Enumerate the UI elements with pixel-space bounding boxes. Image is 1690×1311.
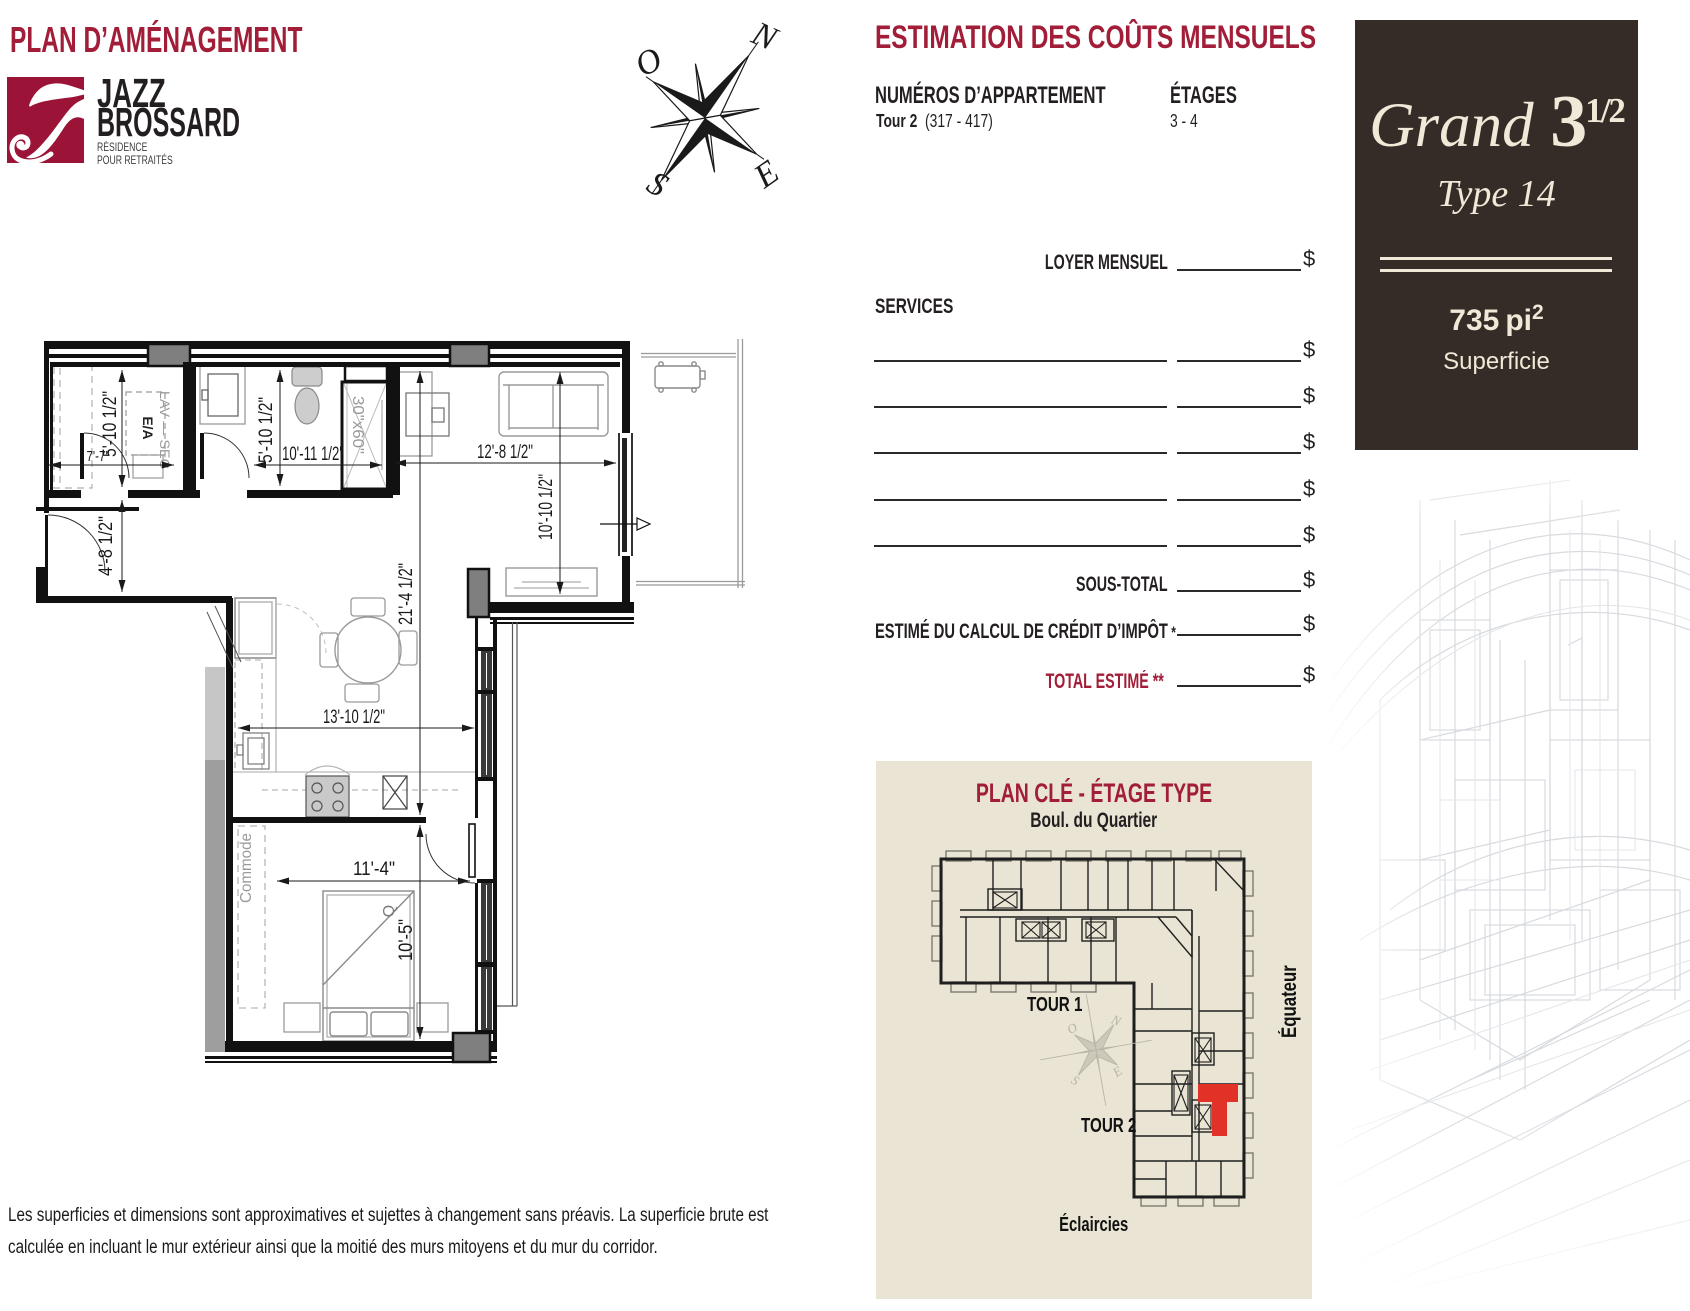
svg-text:5'-10 1/2": 5'-10 1/2" (256, 397, 277, 463)
svg-text:10'-5": 10'-5" (396, 919, 417, 961)
svg-text:N: N (1108, 1011, 1124, 1029)
svg-text:LAV — SEC: LAV — SEC (157, 391, 173, 469)
svg-text:21'-4 1/2": 21'-4 1/2" (396, 563, 417, 625)
svg-text:E/A: E/A (140, 416, 156, 439)
svg-text:10'-11 1/2": 10'-11 1/2" (282, 444, 344, 465)
svg-text:30"x60": 30"x60" (349, 396, 366, 454)
svg-text:12'-8 1/2": 12'-8 1/2" (477, 442, 533, 463)
svg-text:4'-8 1/2": 4'-8 1/2" (96, 516, 117, 576)
svg-text:E: E (1109, 1063, 1125, 1080)
svg-text:5'-10 1/2": 5'-10 1/2" (100, 391, 121, 457)
svg-text:13'-10 1/2": 13'-10 1/2" (323, 707, 385, 728)
svg-text:11'-4": 11'-4" (353, 859, 395, 880)
svg-text:Q: Q (381, 905, 398, 917)
svg-text:O: O (629, 40, 669, 84)
svg-text:E: E (747, 153, 786, 196)
svg-text:S: S (1069, 1072, 1083, 1088)
svg-text:O: O (1064, 1019, 1080, 1037)
svg-text:10'-10 1/2": 10'-10 1/2" (536, 474, 557, 540)
svg-text:S: S (641, 164, 674, 205)
svg-text:Commode: Commode (238, 833, 255, 903)
